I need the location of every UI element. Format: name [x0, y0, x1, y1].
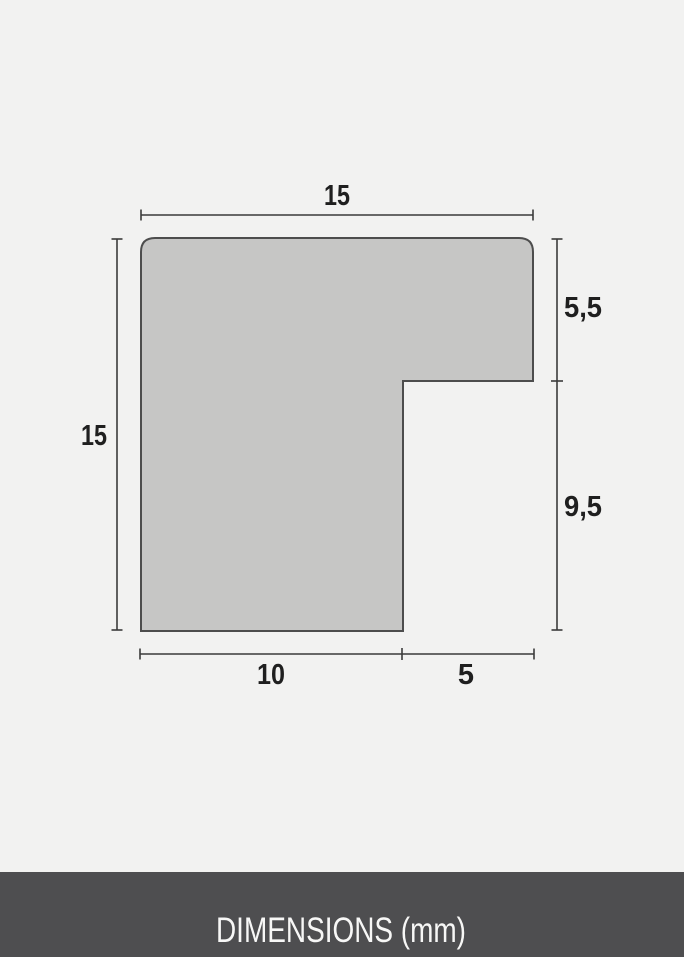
svg-text:15: 15	[81, 420, 107, 452]
svg-text:15: 15	[324, 180, 350, 212]
svg-text:9,5: 9,5	[564, 491, 602, 523]
svg-text:10: 10	[257, 659, 285, 691]
svg-text:5: 5	[458, 659, 474, 691]
svg-text:5,5: 5,5	[564, 292, 602, 324]
svg-text:DIMENSIONS (mm): DIMENSIONS (mm)	[216, 911, 466, 950]
